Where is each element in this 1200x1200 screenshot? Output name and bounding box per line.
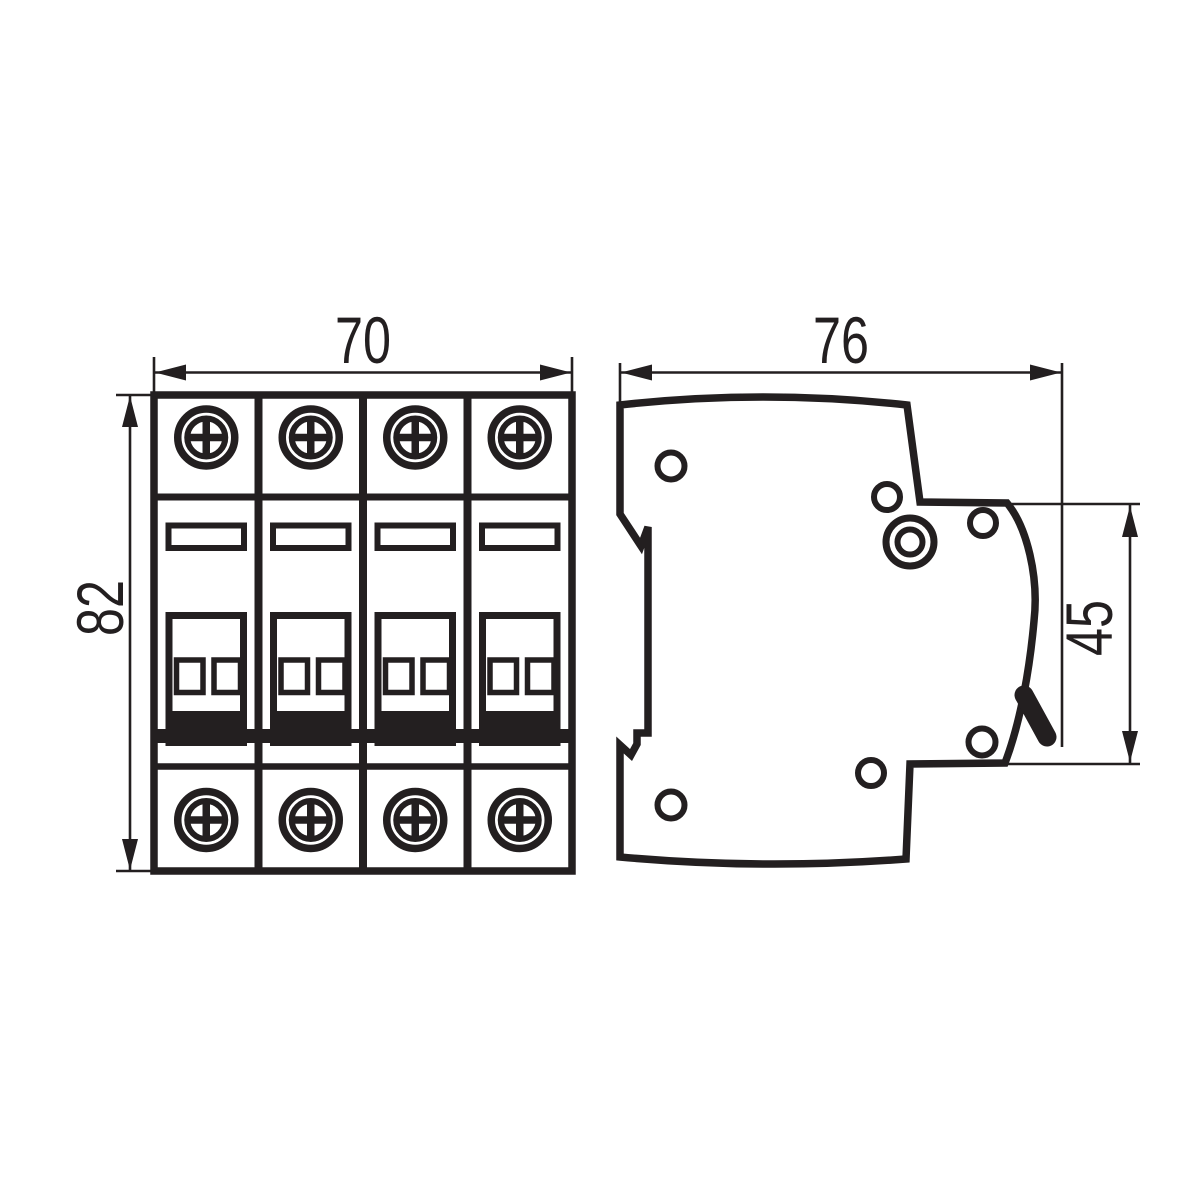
- arrowhead-up-icon: [122, 396, 138, 427]
- dimension-label-side-height: 45: [1052, 600, 1126, 656]
- arrowhead-up-icon: [1122, 506, 1138, 537]
- dimension-label-side-depth: 76: [813, 303, 869, 377]
- dimension-front-height: 82: [63, 395, 158, 871]
- arrowhead-left-icon: [621, 365, 652, 381]
- dimension-side-depth: 76: [620, 303, 1062, 407]
- arrowhead-right-icon: [540, 365, 571, 381]
- arrowhead-right-icon: [1030, 365, 1061, 381]
- dimension-label-front-height: 82: [63, 580, 137, 636]
- dimension-side-height: 45: [1052, 505, 1138, 763]
- circuit-breaker-dimension-drawing: 70 82 76 45: [0, 0, 1200, 1200]
- dimension-front-width: 70: [154, 303, 572, 398]
- front-view: [154, 395, 572, 871]
- arrowhead-left-icon: [155, 365, 186, 381]
- arrowhead-down-icon: [122, 839, 138, 870]
- toggle-lever: [1024, 695, 1047, 737]
- arrowhead-down-icon: [1122, 731, 1138, 762]
- dimension-label-front-width: 70: [335, 303, 391, 377]
- technical-drawing-page: 70 82 76 45: [0, 0, 1200, 1200]
